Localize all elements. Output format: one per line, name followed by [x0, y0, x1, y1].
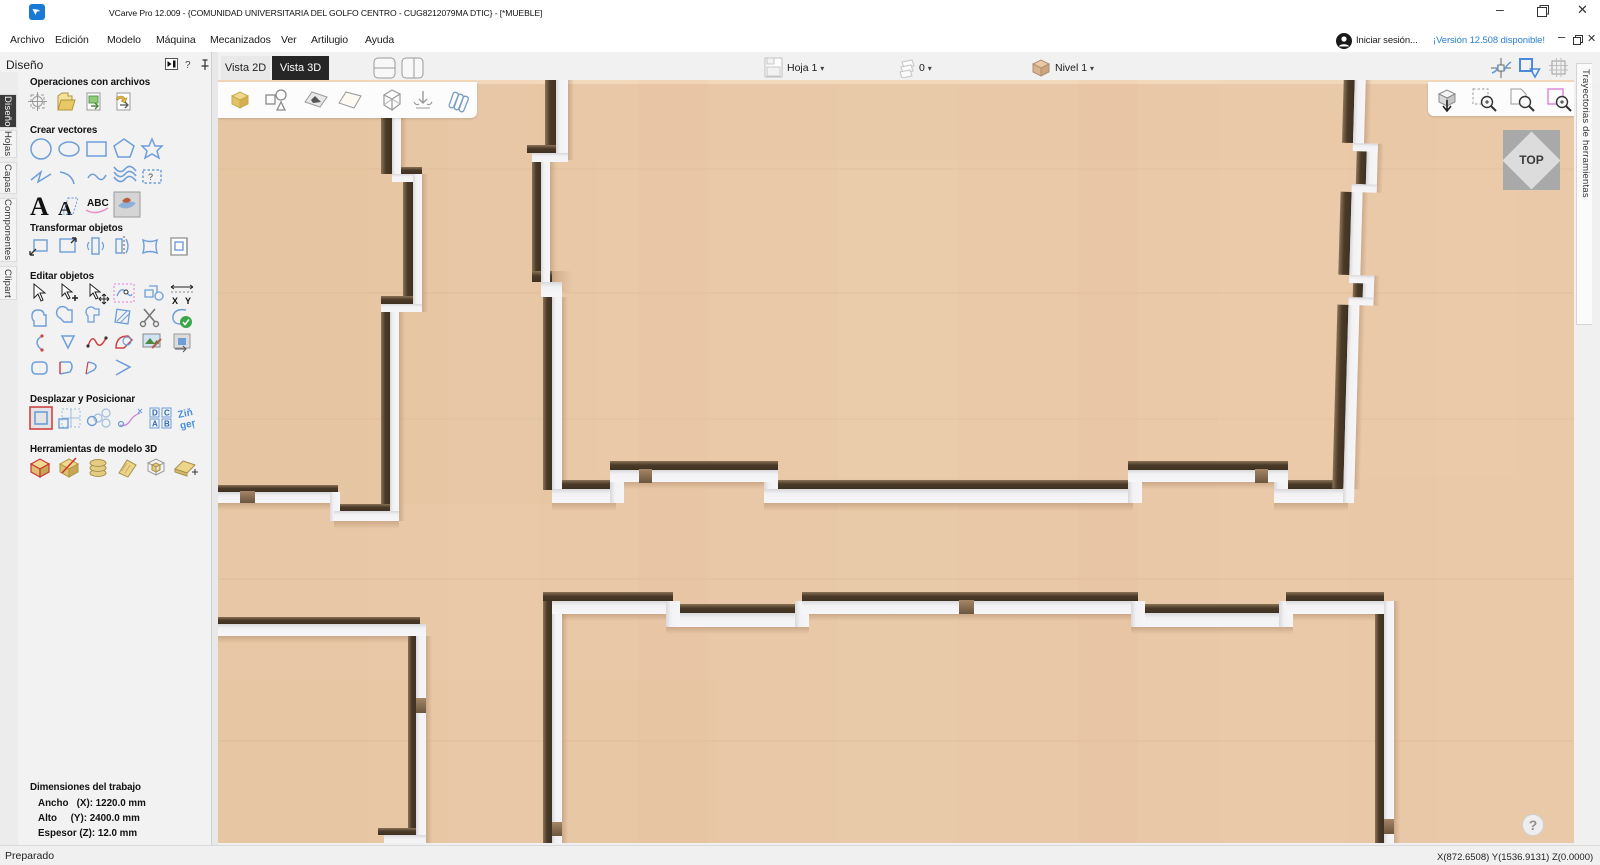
svg-text:C: C: [164, 409, 170, 418]
svg-text:A: A: [152, 420, 158, 429]
svg-text:A: A: [58, 198, 73, 218]
svg-text:ABC: ABC: [87, 198, 109, 209]
svg-text:X: X: [172, 296, 178, 306]
svg-text:D: D: [152, 409, 158, 418]
svg-text:B: B: [164, 420, 170, 429]
svg-text:Y: Y: [185, 296, 191, 306]
svg-text:A: A: [30, 192, 49, 218]
svg-text:?: ?: [148, 172, 153, 182]
svg-text:geŗ: geŗ: [179, 418, 197, 432]
svg-text:?: ?: [185, 60, 191, 71]
